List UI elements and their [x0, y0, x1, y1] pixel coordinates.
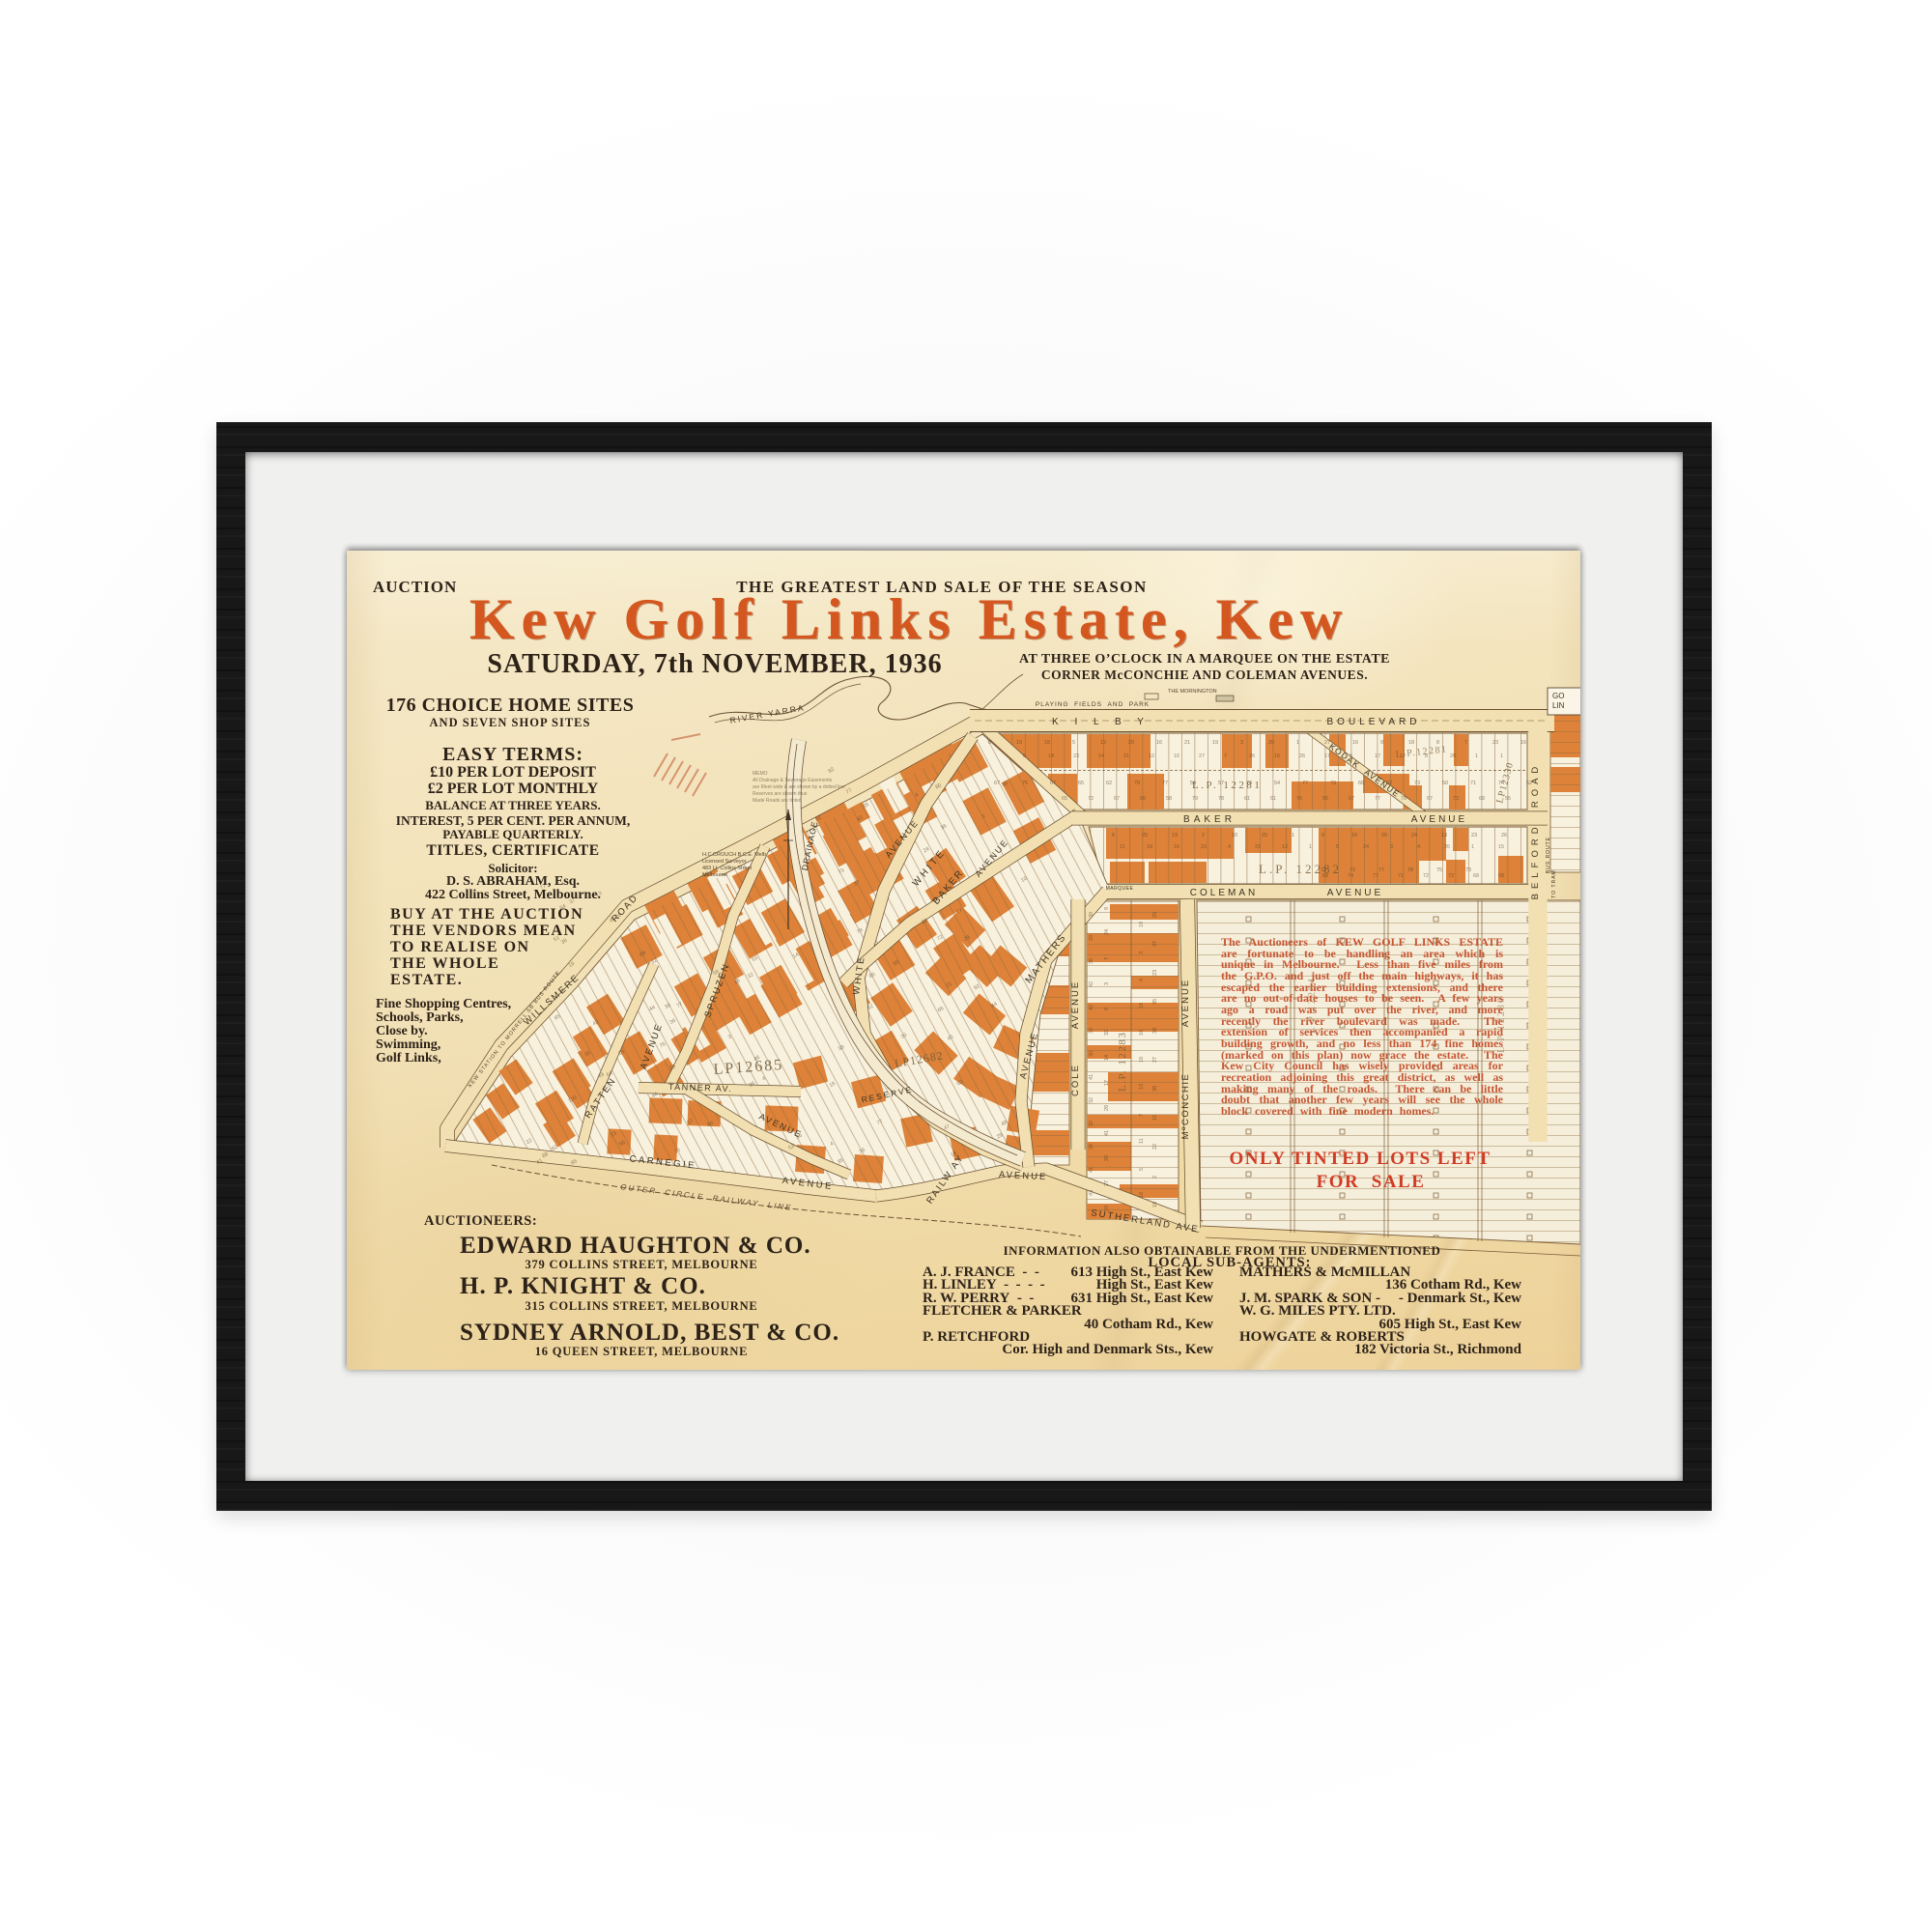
- svg-text:78: 78: [1407, 867, 1413, 873]
- svg-text:66: 66: [1358, 781, 1364, 786]
- svg-text:20: 20: [1381, 833, 1387, 838]
- svg-text:15: 15: [1498, 844, 1504, 850]
- svg-text:16: 16: [1139, 1030, 1145, 1036]
- svg-text:18: 18: [1139, 1192, 1145, 1198]
- svg-text:23: 23: [1471, 833, 1477, 838]
- svg-text:42: 42: [1089, 1005, 1094, 1010]
- svg-text:3: 3: [1104, 982, 1110, 985]
- svg-text:6: 6: [1350, 753, 1352, 759]
- svg-text:AVENUE: AVENUE: [1070, 980, 1081, 1029]
- svg-text:32: 32: [1104, 1030, 1110, 1036]
- svg-text:18: 18: [1152, 1202, 1158, 1207]
- svg-text:K I L B Y: K I L B Y: [1052, 717, 1151, 727]
- svg-text:17: 17: [1375, 753, 1380, 759]
- svg-text:16: 16: [1174, 753, 1179, 759]
- svg-text:70: 70: [1246, 781, 1252, 786]
- svg-text:78: 78: [1218, 796, 1224, 802]
- svg-text:23: 23: [1073, 753, 1079, 759]
- svg-text:68: 68: [1498, 873, 1504, 879]
- svg-text:74: 74: [1348, 873, 1353, 879]
- svg-text:9: 9: [1321, 833, 1324, 838]
- svg-text:25: 25: [1262, 833, 1267, 838]
- svg-text:68: 68: [1322, 873, 1328, 879]
- svg-text:27: 27: [1104, 1180, 1110, 1186]
- svg-text:58: 58: [1166, 796, 1172, 802]
- svg-text:26: 26: [1450, 753, 1456, 759]
- svg-text:12: 12: [1100, 740, 1106, 746]
- svg-text:24: 24: [1104, 929, 1110, 935]
- svg-text:MºCONCHIE: MºCONCHIE: [1180, 1073, 1191, 1140]
- svg-text:54: 54: [1190, 781, 1196, 786]
- svg-text:77: 77: [1162, 781, 1168, 786]
- svg-text:21: 21: [1123, 753, 1129, 759]
- svg-text:78: 78: [1401, 796, 1406, 802]
- svg-text:14: 14: [1048, 753, 1054, 759]
- svg-text:18: 18: [1044, 740, 1050, 746]
- svg-text:19: 19: [1139, 922, 1145, 927]
- svg-text:Licensed Surveyor: Licensed Surveyor: [702, 859, 747, 865]
- svg-text:H.C.CROUCH B.C.E. Melb: H.C.CROUCH B.C.E. Melb: [702, 852, 766, 858]
- svg-text:AVENUE: AVENUE: [1180, 979, 1191, 1027]
- svg-text:76: 76: [1296, 796, 1302, 802]
- svg-text:AVENUE: AVENUE: [1327, 888, 1383, 898]
- svg-text:17: 17: [1400, 753, 1406, 759]
- svg-text:Reserves are shown thus: Reserves are shown thus: [753, 791, 808, 797]
- svg-text:35: 35: [1152, 999, 1158, 1005]
- svg-text:13: 13: [1441, 833, 1447, 838]
- svg-text:77: 77: [1302, 781, 1308, 786]
- svg-text:21: 21: [1255, 844, 1261, 850]
- svg-text:20: 20: [1104, 1155, 1110, 1161]
- svg-text:54: 54: [1274, 781, 1280, 786]
- svg-text:74: 74: [1498, 781, 1504, 786]
- svg-text:1: 1: [1309, 844, 1312, 850]
- svg-text:23: 23: [1201, 844, 1207, 850]
- svg-text:16: 16: [1274, 753, 1280, 759]
- svg-text:77: 77: [1375, 796, 1380, 802]
- svg-text:18: 18: [1139, 1057, 1145, 1063]
- svg-text:73: 73: [1448, 873, 1454, 879]
- svg-text:37: 37: [1152, 941, 1158, 947]
- svg-text:27: 27: [1152, 1057, 1158, 1063]
- svg-text:4: 4: [1139, 979, 1145, 981]
- svg-text:18: 18: [1408, 740, 1414, 746]
- svg-text:18: 18: [1147, 844, 1152, 850]
- svg-text:32: 32: [1089, 1121, 1094, 1126]
- svg-text:All Drainage & Sewerage Easeme: All Drainage & Sewerage Easements: [753, 778, 833, 783]
- svg-text:24: 24: [1363, 844, 1369, 850]
- svg-text:21: 21: [1184, 740, 1190, 746]
- svg-text:BAKER: BAKER: [1183, 814, 1236, 825]
- svg-text:38: 38: [1152, 1086, 1158, 1092]
- svg-text:23: 23: [1152, 970, 1158, 976]
- svg-text:20: 20: [1268, 740, 1274, 746]
- svg-text:22: 22: [1152, 1144, 1158, 1150]
- svg-text:67: 67: [1349, 796, 1354, 802]
- svg-text:55: 55: [1322, 796, 1328, 802]
- svg-text:9: 9: [1104, 1008, 1110, 1010]
- svg-text:65: 65: [1062, 796, 1067, 802]
- svg-text:19: 19: [1172, 833, 1178, 838]
- svg-text:76: 76: [1022, 781, 1028, 786]
- svg-text:28: 28: [1104, 1105, 1110, 1111]
- svg-text:71: 71: [1398, 873, 1404, 879]
- svg-text:MEMO: MEMO: [753, 771, 768, 777]
- svg-text:TO TRAM: TO TRAM: [1551, 869, 1557, 897]
- svg-text:8: 8: [1425, 753, 1428, 759]
- svg-text:5: 5: [1072, 740, 1075, 746]
- svg-text:73: 73: [1453, 796, 1459, 802]
- svg-text:67: 67: [1050, 781, 1056, 786]
- svg-text:1: 1: [1475, 753, 1478, 759]
- svg-text:13: 13: [1139, 1084, 1145, 1090]
- svg-text:BUS ROUTE: BUS ROUTE: [1546, 837, 1551, 873]
- svg-text:77: 77: [1378, 867, 1384, 873]
- svg-text:11: 11: [1120, 844, 1125, 850]
- svg-text:3: 3: [1240, 740, 1243, 746]
- svg-text:L.P. 12282: L.P. 12282: [1259, 862, 1342, 876]
- svg-text:16: 16: [1352, 740, 1358, 746]
- svg-text:1: 1: [1296, 740, 1299, 746]
- svg-text:27: 27: [1199, 753, 1205, 759]
- svg-text:14: 14: [1098, 753, 1104, 759]
- svg-text:are 6feet wide & are shown by: are 6feet wide & are shown by a dotted l…: [753, 784, 845, 790]
- svg-text:23: 23: [1492, 740, 1498, 746]
- svg-text:72: 72: [1088, 796, 1094, 802]
- svg-text:26: 26: [1501, 833, 1507, 838]
- svg-text:19: 19: [1016, 740, 1022, 746]
- svg-text:67: 67: [1427, 796, 1433, 802]
- svg-text:67: 67: [1114, 796, 1120, 802]
- svg-text:LIN: LIN: [1552, 701, 1565, 710]
- svg-text:10: 10: [1232, 833, 1237, 838]
- svg-text:50: 50: [1442, 781, 1448, 786]
- svg-text:32: 32: [1089, 1028, 1094, 1034]
- svg-text:12: 12: [1282, 844, 1288, 850]
- svg-text:41: 41: [1104, 1130, 1110, 1136]
- svg-text:BOULEVARD: BOULEVARD: [1327, 717, 1421, 727]
- svg-text:73: 73: [1465, 867, 1471, 873]
- svg-text:38: 38: [1152, 1028, 1158, 1034]
- svg-text:7: 7: [1139, 1114, 1145, 1117]
- svg-text:7: 7: [1464, 740, 1467, 746]
- svg-text:61: 61: [1244, 796, 1250, 802]
- svg-text:42: 42: [1089, 981, 1094, 987]
- svg-text:MARQUEE: MARQUEE: [1106, 886, 1134, 892]
- svg-text:BELFORD ROAD: BELFORD ROAD: [1530, 762, 1541, 900]
- svg-text:AVENUE: AVENUE: [999, 1170, 1048, 1183]
- svg-text:29: 29: [1089, 935, 1094, 941]
- svg-text:39: 39: [1089, 912, 1094, 918]
- svg-text:2: 2: [1152, 1176, 1158, 1179]
- svg-text:39: 39: [1089, 1144, 1094, 1150]
- svg-text:5: 5: [1139, 1168, 1145, 1171]
- svg-text:1: 1: [1471, 844, 1474, 850]
- svg-text:26: 26: [1444, 844, 1450, 850]
- svg-text:8: 8: [1436, 740, 1439, 746]
- svg-text:9: 9: [1380, 740, 1383, 746]
- svg-text:6: 6: [1112, 833, 1115, 838]
- svg-text:71: 71: [1470, 781, 1476, 786]
- svg-text:32: 32: [1089, 1097, 1094, 1103]
- svg-text:AVENUE: AVENUE: [1411, 814, 1467, 825]
- svg-text:16: 16: [1351, 833, 1357, 838]
- svg-text:79: 79: [1330, 781, 1336, 786]
- svg-text:483 Lt. Collins Street: 483 Lt. Collins Street: [702, 866, 753, 871]
- svg-text:75: 75: [1436, 867, 1442, 873]
- svg-text:61: 61: [1270, 796, 1276, 802]
- svg-text:77: 77: [1373, 873, 1378, 879]
- svg-text:16: 16: [1156, 740, 1162, 746]
- svg-text:15: 15: [1152, 1115, 1158, 1121]
- svg-text:16: 16: [1174, 844, 1179, 850]
- svg-text:70: 70: [1134, 781, 1140, 786]
- svg-text:L.P. 12283: L.P. 12283: [1117, 1032, 1128, 1092]
- svg-text:RIVER YARRA: RIVER YARRA: [729, 702, 806, 725]
- svg-text:26: 26: [1249, 753, 1255, 759]
- svg-text:5: 5: [1336, 844, 1339, 850]
- svg-text:62: 62: [1106, 781, 1112, 786]
- svg-text:72: 72: [1423, 873, 1429, 879]
- svg-text:14: 14: [1104, 1055, 1110, 1061]
- svg-text:20: 20: [1128, 740, 1134, 746]
- svg-text:THE MORNINGTON: THE MORNINGTON: [1168, 689, 1217, 695]
- svg-text:65: 65: [1078, 781, 1084, 786]
- svg-text:GO: GO: [1552, 692, 1564, 700]
- svg-text:25: 25: [1142, 833, 1148, 838]
- svg-text:43: 43: [1089, 1190, 1094, 1196]
- svg-text:25: 25: [1152, 912, 1158, 918]
- svg-text:9: 9: [1104, 907, 1110, 910]
- svg-text:92: 92: [828, 767, 836, 775]
- svg-text:Made Roads are tinted: Made Roads are tinted: [753, 798, 802, 804]
- svg-text:4: 4: [1228, 844, 1231, 850]
- svg-text:16: 16: [1520, 740, 1526, 746]
- svg-text:68: 68: [1473, 873, 1479, 879]
- svg-text:10: 10: [1149, 753, 1154, 759]
- svg-text:4: 4: [1417, 844, 1420, 850]
- svg-text:41: 41: [1089, 1167, 1094, 1173]
- svg-text:3: 3: [1139, 952, 1145, 954]
- svg-text:30: 30: [1089, 1051, 1094, 1057]
- svg-text:56: 56: [1140, 796, 1146, 802]
- svg-text:7: 7: [1104, 957, 1110, 960]
- svg-text:COLEMAN: COLEMAN: [1190, 888, 1258, 898]
- svg-text:2: 2: [1202, 833, 1205, 838]
- svg-text:19: 19: [1212, 740, 1218, 746]
- svg-text:1: 1: [1500, 753, 1503, 759]
- svg-text:36: 36: [1089, 958, 1094, 964]
- svg-text:68: 68: [1479, 796, 1485, 802]
- svg-text:73: 73: [1414, 781, 1420, 786]
- svg-text:79: 79: [1192, 796, 1198, 802]
- svg-text:6: 6: [1023, 753, 1026, 759]
- svg-text:11: 11: [1139, 1138, 1145, 1144]
- svg-text:24: 24: [1411, 833, 1417, 838]
- svg-text:55: 55: [1505, 796, 1511, 802]
- svg-text:COLE: COLE: [1070, 1064, 1081, 1096]
- svg-text:3: 3: [1390, 844, 1393, 850]
- svg-text:7: 7: [1224, 753, 1227, 759]
- svg-text:8: 8: [988, 740, 991, 746]
- svg-text:17: 17: [1104, 1080, 1110, 1086]
- svg-text:18: 18: [1139, 1003, 1145, 1009]
- svg-text:57: 57: [1218, 781, 1224, 786]
- svg-text:41: 41: [1089, 1074, 1094, 1080]
- svg-text:62: 62: [1386, 781, 1392, 786]
- svg-text:PLAYING FIELDS AND PARK: PLAYING FIELDS AND PARK: [1036, 701, 1150, 708]
- svg-text:1: 1: [1292, 833, 1294, 838]
- svg-text:17: 17: [1324, 753, 1330, 759]
- svg-text:27: 27: [1324, 740, 1330, 746]
- svg-text:26: 26: [1299, 753, 1305, 759]
- svg-text:67: 67: [994, 781, 1000, 786]
